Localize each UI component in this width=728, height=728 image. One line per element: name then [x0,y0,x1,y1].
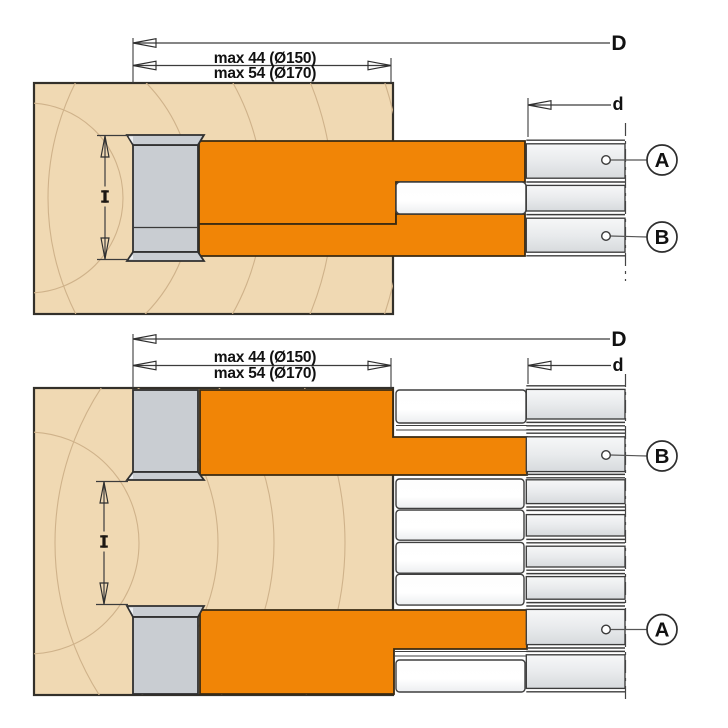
svg-text:max 54 (Ø170): max 54 (Ø170) [214,65,317,82]
svg-text:max 44 (Ø150): max 44 (Ø150) [214,349,317,366]
svg-text:B: B [655,226,670,249]
svg-text:d: d [613,355,624,375]
svg-text:D: D [611,32,626,55]
svg-text:d: d [613,94,624,114]
svg-text:A: A [655,149,670,172]
svg-text:max 54 (Ø170): max 54 (Ø170) [214,365,317,382]
svg-text:B: B [655,445,670,468]
svg-text:A: A [655,619,670,642]
svg-text:D: D [611,328,626,351]
